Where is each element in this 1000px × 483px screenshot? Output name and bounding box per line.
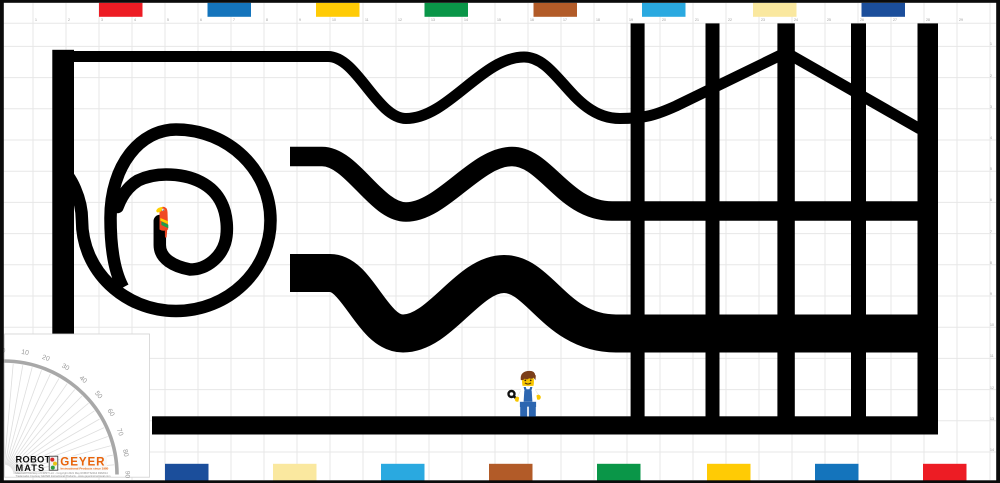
svg-text:Trademarks Courtesy GEYER Inst: Trademarks Courtesy GEYER Instructional … — [16, 474, 111, 478]
svg-text:8: 8 — [266, 18, 268, 22]
svg-text:7: 7 — [233, 18, 235, 22]
svg-text:4: 4 — [990, 136, 992, 140]
svg-text:26: 26 — [860, 18, 864, 22]
svg-text:10: 10 — [21, 349, 30, 357]
svg-text:20: 20 — [662, 18, 666, 22]
svg-text:3: 3 — [101, 18, 103, 22]
svg-text:14: 14 — [464, 18, 468, 22]
svg-text:17: 17 — [563, 18, 567, 22]
svg-text:14: 14 — [990, 448, 994, 452]
svg-text:15: 15 — [497, 18, 501, 22]
svg-text:1: 1 — [35, 18, 37, 22]
svg-text:11: 11 — [990, 354, 994, 358]
svg-text:13: 13 — [431, 18, 435, 22]
svg-text:8: 8 — [990, 261, 992, 265]
svg-text:28: 28 — [926, 18, 930, 22]
svg-text:2: 2 — [990, 74, 992, 78]
svg-text:21: 21 — [695, 18, 699, 22]
svg-text:5: 5 — [167, 18, 169, 22]
svg-text:6: 6 — [200, 18, 202, 22]
svg-text:9: 9 — [990, 292, 992, 296]
svg-text:19: 19 — [629, 18, 633, 22]
svg-text:29: 29 — [959, 18, 963, 22]
svg-text:90: 90 — [124, 471, 131, 479]
svg-text:18: 18 — [596, 18, 600, 22]
svg-text:5: 5 — [990, 167, 992, 171]
svg-text:10: 10 — [332, 18, 336, 22]
svg-text:Instructional Products since: Instructional Products since 1980 — [61, 466, 109, 470]
svg-text:7: 7 — [990, 230, 992, 234]
svg-text:80: 80 — [121, 449, 129, 458]
svg-text:24: 24 — [794, 18, 798, 22]
svg-text:22: 22 — [728, 18, 732, 22]
svg-text:6: 6 — [990, 198, 992, 202]
svg-text:23: 23 — [761, 18, 765, 22]
svg-text:13: 13 — [990, 417, 994, 421]
svg-text:3: 3 — [990, 105, 992, 109]
svg-text:16: 16 — [530, 18, 534, 22]
svg-text:25: 25 — [827, 18, 831, 22]
svg-text:27: 27 — [893, 18, 897, 22]
svg-text:4: 4 — [134, 18, 136, 22]
svg-text:10: 10 — [990, 323, 994, 327]
svg-text:12: 12 — [990, 386, 994, 390]
svg-text:9: 9 — [299, 18, 301, 22]
svg-text:12: 12 — [398, 18, 402, 22]
svg-text:1: 1 — [990, 42, 992, 46]
svg-text:2: 2 — [68, 18, 70, 22]
svg-text:11: 11 — [365, 18, 369, 22]
